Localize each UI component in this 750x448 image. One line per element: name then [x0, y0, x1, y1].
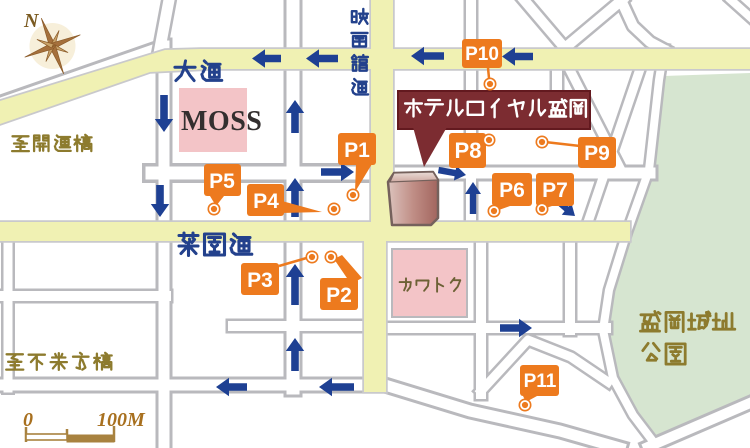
svg-text:P11: P11 [524, 371, 557, 392]
svg-text:P1: P1 [344, 139, 370, 162]
svg-text:P8: P8 [455, 138, 482, 163]
svg-text:P7: P7 [542, 179, 568, 202]
svg-text:0: 0 [23, 409, 33, 431]
svg-text:MOSS: MOSS [181, 106, 262, 137]
svg-text:P4: P4 [253, 190, 279, 213]
svg-text:P10: P10 [465, 44, 499, 65]
svg-text:P5: P5 [209, 170, 235, 193]
svg-text:100M: 100M [97, 409, 146, 431]
svg-text:P9: P9 [584, 142, 610, 165]
svg-text:P2: P2 [326, 284, 352, 307]
svg-text:P6: P6 [499, 179, 525, 202]
svg-text:N: N [23, 10, 40, 32]
svg-text:P3: P3 [247, 269, 273, 292]
